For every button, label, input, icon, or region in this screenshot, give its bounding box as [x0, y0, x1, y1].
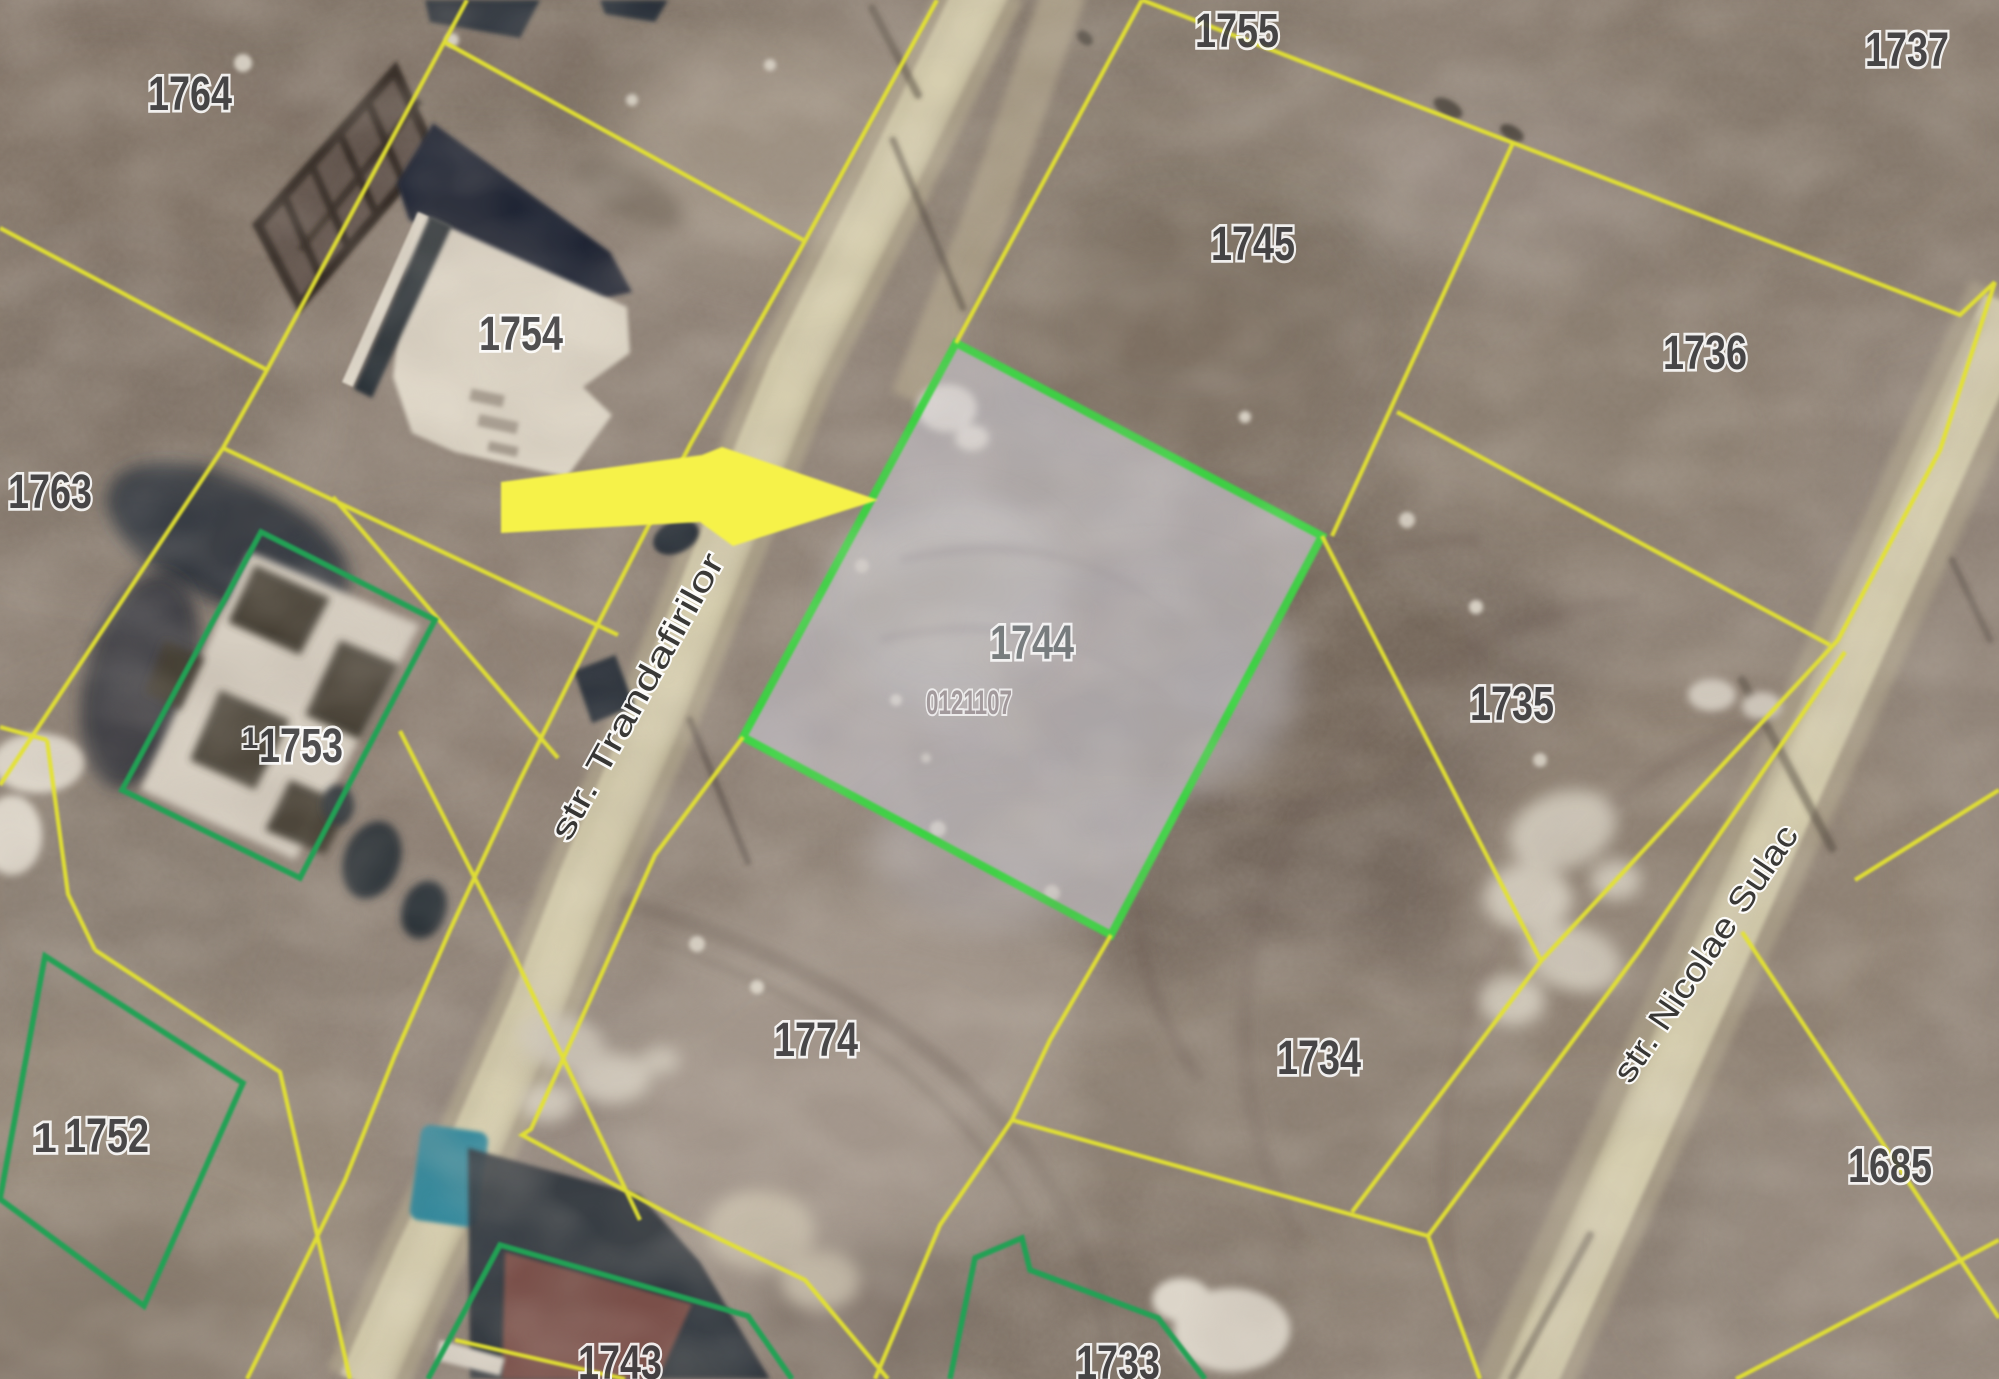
svg-text:1743: 1743 — [578, 1337, 662, 1379]
svg-text:1752: 1752 — [65, 1110, 149, 1163]
svg-text:1753: 1753 — [259, 720, 343, 773]
svg-text:1: 1 — [33, 1114, 56, 1161]
svg-text:0121107: 0121107 — [926, 684, 1012, 722]
svg-text:1733: 1733 — [1076, 1337, 1160, 1379]
svg-text:1734: 1734 — [1277, 1032, 1361, 1085]
svg-text:1685: 1685 — [1848, 1140, 1932, 1193]
svg-text:1: 1 — [242, 722, 259, 755]
svg-text:1744: 1744 — [990, 617, 1074, 670]
svg-text:1745: 1745 — [1211, 218, 1295, 271]
svg-text:1754: 1754 — [479, 308, 563, 361]
svg-text:1737: 1737 — [1865, 24, 1949, 77]
svg-text:1763: 1763 — [8, 466, 92, 519]
svg-text:1736: 1736 — [1663, 327, 1747, 380]
svg-text:1735: 1735 — [1470, 678, 1554, 731]
svg-text:1774: 1774 — [774, 1014, 858, 1067]
svg-text:1764: 1764 — [148, 68, 232, 121]
svg-text:1755: 1755 — [1195, 5, 1279, 58]
